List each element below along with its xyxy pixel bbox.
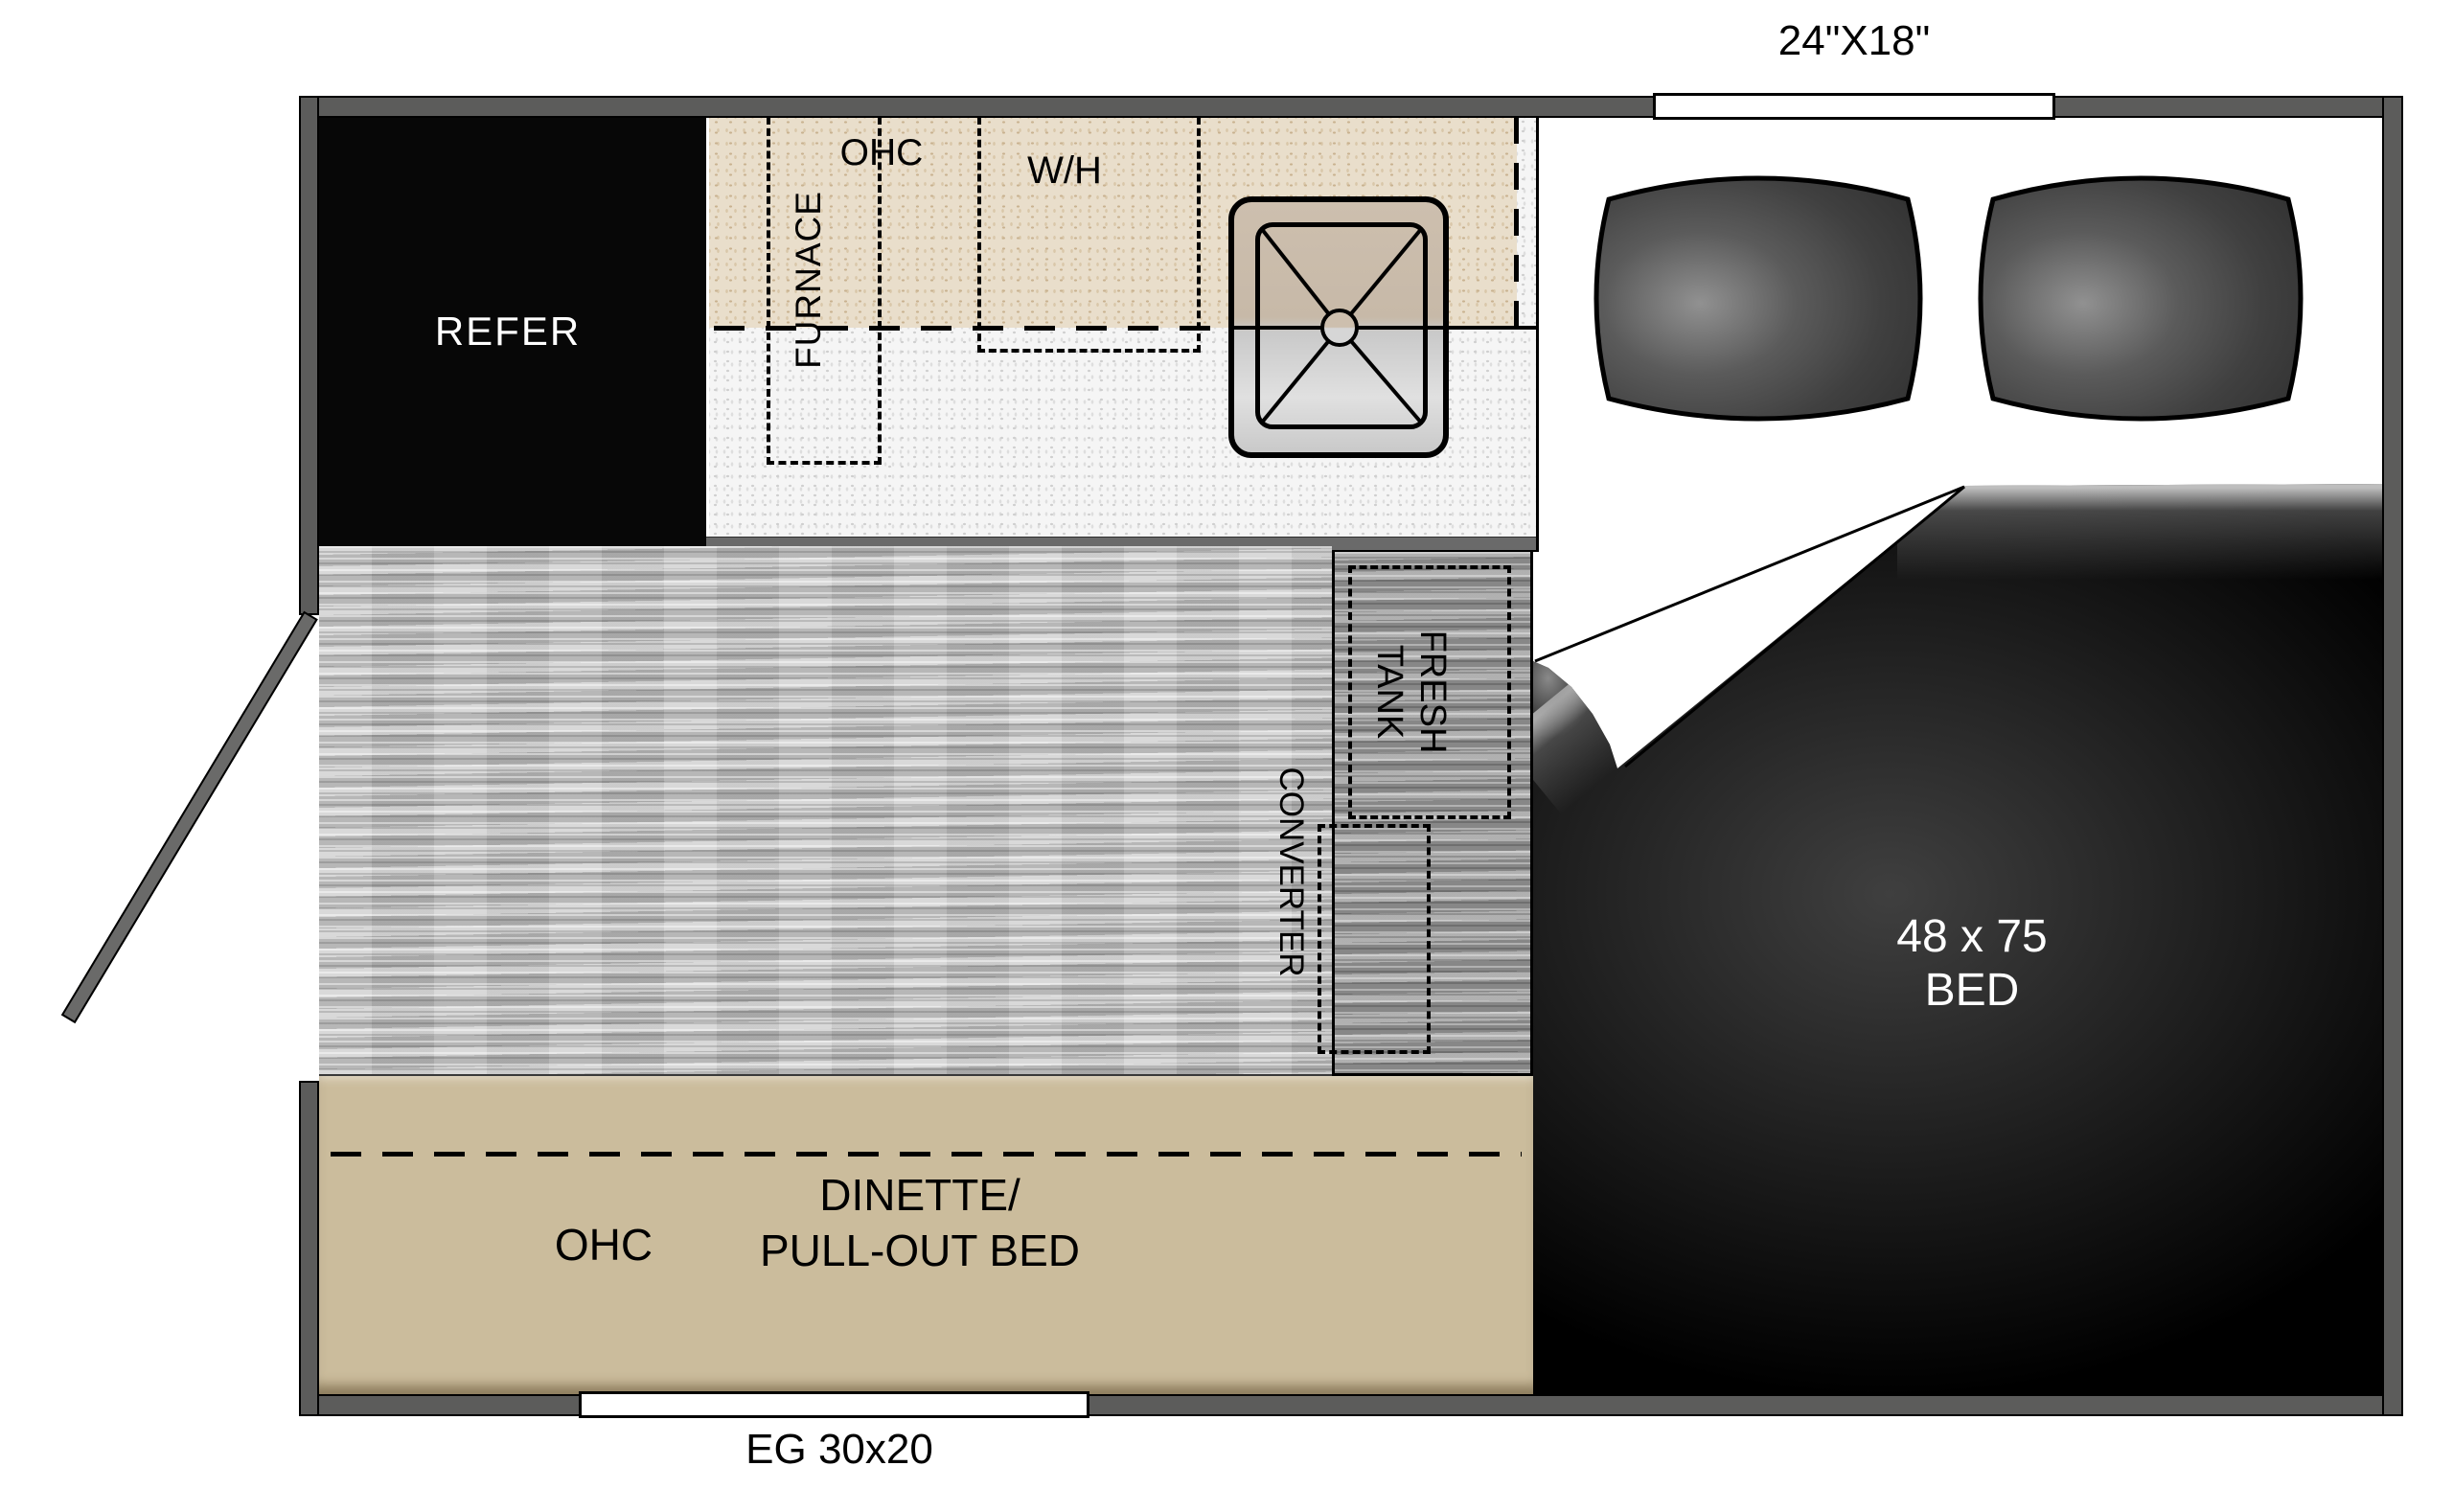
counter-strip-right [1517,117,1538,328]
fresh-tank-label: FRESH TANK [1367,548,1454,836]
water-heater-label: W/H [993,149,1136,193]
wall-top [299,96,2403,118]
converter-label: CONVERTER [1272,680,1310,1064]
fresh-tank-label-line2: TANK [1367,548,1410,836]
cabinet-right-dash-line [1514,117,1519,328]
dinette-label: DINETTE/ PULL-OUT BED [704,1167,1135,1278]
wall-left-upper [299,96,319,615]
bed-word-label: BED [1780,964,2164,1018]
bed-size-label: 48 x 75 [1780,910,2164,964]
bed-label: 48 x 75 BED [1780,910,2164,1018]
refrigerator-label: REFER [364,309,652,355]
dinette-pullout-dash-line [331,1152,1522,1157]
egress-window-label: EG 30x20 [696,1426,983,1474]
wall-right [2382,96,2403,1416]
floorplan-canvas: 24"X18" REFER FURNACE OHC W/H FRESH TANK… [0,0,2453,1512]
dinette-label-line1: DINETTE/ [704,1167,1135,1223]
furnace-label: FURNACE [789,136,827,424]
converter-zone [1318,824,1431,1054]
kitchen-bedroom-divider-line [1536,117,1539,552]
entry-door [61,611,318,1023]
bedroom-window-opening [1653,93,2055,120]
dinette-label-line2: PULL-OUT BED [704,1223,1135,1278]
main-floor [319,546,1332,1076]
wall-left-lower [299,1081,319,1416]
shower-waist-line [1228,326,1538,330]
fresh-tank-label-line1: FRESH [1410,548,1454,836]
dinette-ohc-label: OHC [508,1219,699,1271]
kitchen-ohc-label: OHC [810,132,953,174]
egress-window-opening [579,1391,1089,1418]
window-size-label: 24"X18" [1662,17,2046,65]
